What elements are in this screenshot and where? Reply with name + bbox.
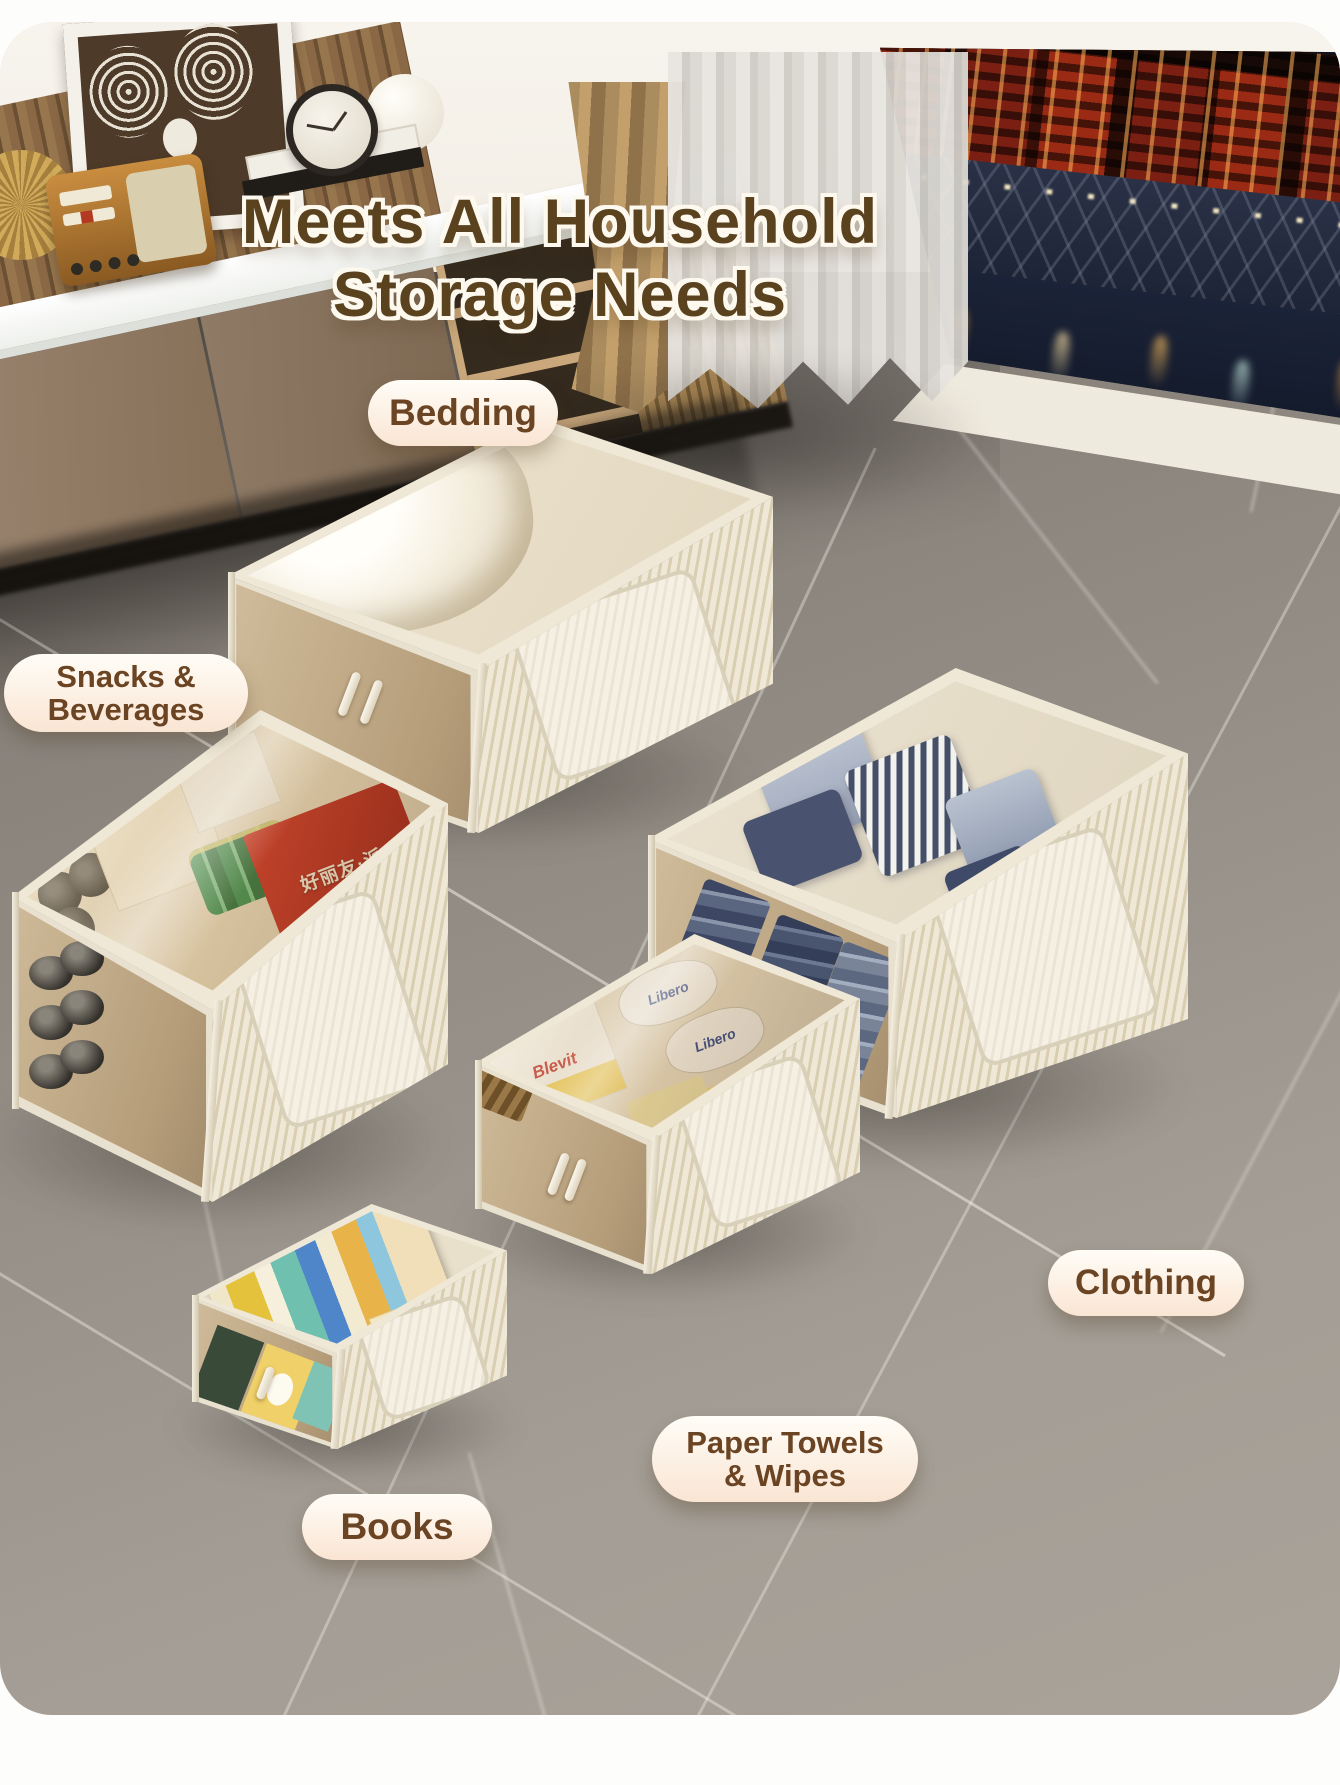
storage-box-paper-towels: Blevit Blevit Libero Libero: [475, 934, 860, 1274]
table-clock: [286, 84, 378, 176]
label-text: Books: [340, 1507, 453, 1547]
label-text: Clothing: [1075, 1264, 1217, 1302]
spiral-artwork: [169, 22, 257, 123]
poster-title: Meets All Household Storage Needs: [0, 186, 1120, 332]
label-text: Paper Towels: [686, 1426, 884, 1459]
marble-vein: [468, 1452, 641, 1715]
label-pill-books: Books: [302, 1494, 492, 1560]
box-corner-strut: [475, 1060, 482, 1210]
box-corner-strut: [192, 1295, 199, 1403]
clock-hour-hand: [332, 111, 347, 131]
canned-drink: [60, 990, 104, 1024]
canned-drink: [60, 1040, 104, 1074]
spiral-artwork: [87, 43, 171, 140]
product-poster: 好丽友 好丽友 好丽友 好丽友·派: [0, 0, 1340, 1785]
label-text: & Wipes: [724, 1459, 846, 1492]
label-text: Bedding: [389, 393, 537, 433]
label-pill-bedding: Bedding: [368, 380, 558, 446]
label-text: Snacks &: [56, 660, 196, 693]
clock-minute-hand: [307, 124, 334, 132]
artwork-dot: [162, 117, 199, 159]
title-line-2: Storage Needs: [0, 259, 1120, 332]
snack-brand-text: 好丽友: [42, 793, 104, 837]
canned-drink: [60, 941, 104, 975]
label-pill-paper-towels: Paper Towels & Wipes: [652, 1416, 918, 1502]
light-reflection: [1334, 359, 1340, 412]
snack-brand-text: 好丽友: [65, 731, 127, 775]
box-corner-strut: [12, 892, 19, 1108]
label-pill-clothing: Clothing: [1048, 1250, 1244, 1316]
room-photo: 好丽友 好丽友 好丽友 好丽友·派: [0, 22, 1340, 1715]
light-reflection: [1147, 334, 1169, 387]
storage-box-snacks: 好丽友 好丽友 好丽友 好丽友·派: [12, 710, 448, 1202]
title-line-1: Meets All Household: [0, 186, 1120, 259]
label-text: Beverages: [48, 693, 205, 726]
storage-box-books: [192, 1204, 507, 1449]
label-pill-snacks: Snacks & Beverages: [4, 654, 248, 732]
